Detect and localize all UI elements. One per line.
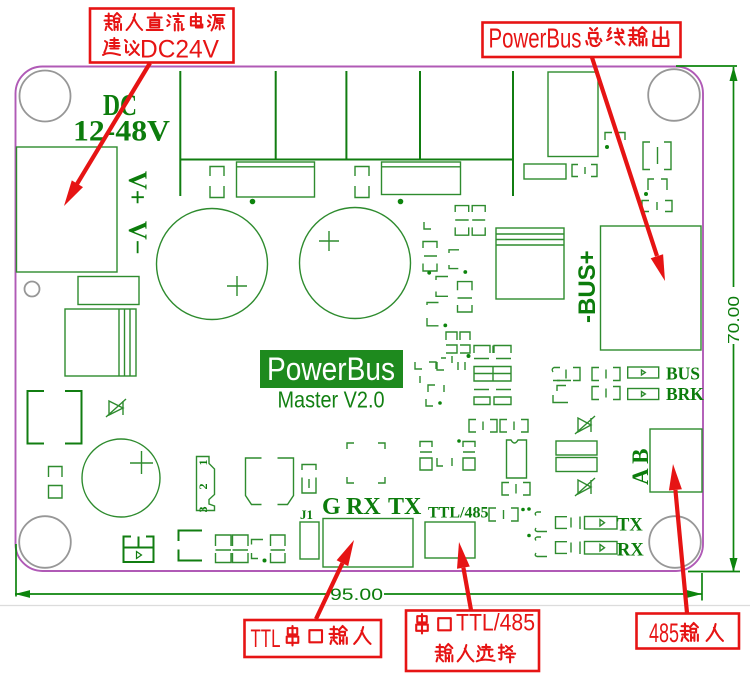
svg-text:TX: TX	[617, 516, 643, 536]
svg-text:A B: A B	[628, 449, 653, 485]
svg-text:PowerBus: PowerBus	[267, 351, 395, 387]
svg-text:70.00: 70.00	[726, 296, 743, 344]
svg-text:95.00: 95.00	[330, 586, 383, 604]
svg-text:RX: RX	[617, 541, 644, 561]
svg-text:RX: RX	[346, 494, 381, 520]
svg-text:3: 3	[196, 507, 210, 513]
svg-text:1: 1	[196, 460, 210, 466]
svg-text:PowerBus: PowerBus	[489, 23, 582, 54]
svg-text:BRK: BRK	[666, 384, 704, 404]
svg-text:Master V2.0: Master V2.0	[278, 387, 385, 413]
svg-text:2: 2	[196, 484, 210, 490]
svg-text:12-48V: 12-48V	[73, 116, 170, 148]
svg-text:DC24V: DC24V	[140, 36, 219, 64]
svg-text:TTL/485: TTL/485	[456, 610, 535, 637]
svg-text:J1: J1	[300, 507, 313, 522]
svg-text:G: G	[322, 494, 341, 520]
svg-text:V+: V+	[123, 171, 152, 205]
svg-text:V−: V−	[123, 221, 152, 255]
svg-text:TTL/485: TTL/485	[428, 505, 488, 522]
svg-text:BUS: BUS	[666, 364, 700, 384]
svg-text:485: 485	[649, 618, 679, 648]
svg-text:-BUS+: -BUS+	[574, 250, 601, 323]
svg-text:TX: TX	[388, 494, 422, 520]
svg-text:TTL: TTL	[251, 625, 281, 653]
